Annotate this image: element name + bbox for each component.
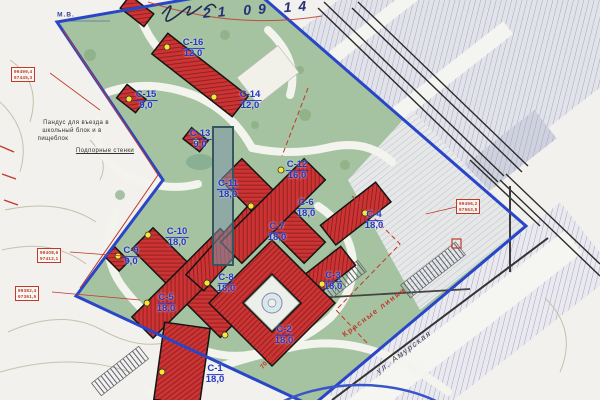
site-plan-page: С-1612,0С-1412,0С-159,0С-139,0С-1216,0С-…: [0, 0, 600, 400]
scan-highlight-band: [213, 127, 233, 265]
site-plan-graphic: [0, 0, 600, 400]
